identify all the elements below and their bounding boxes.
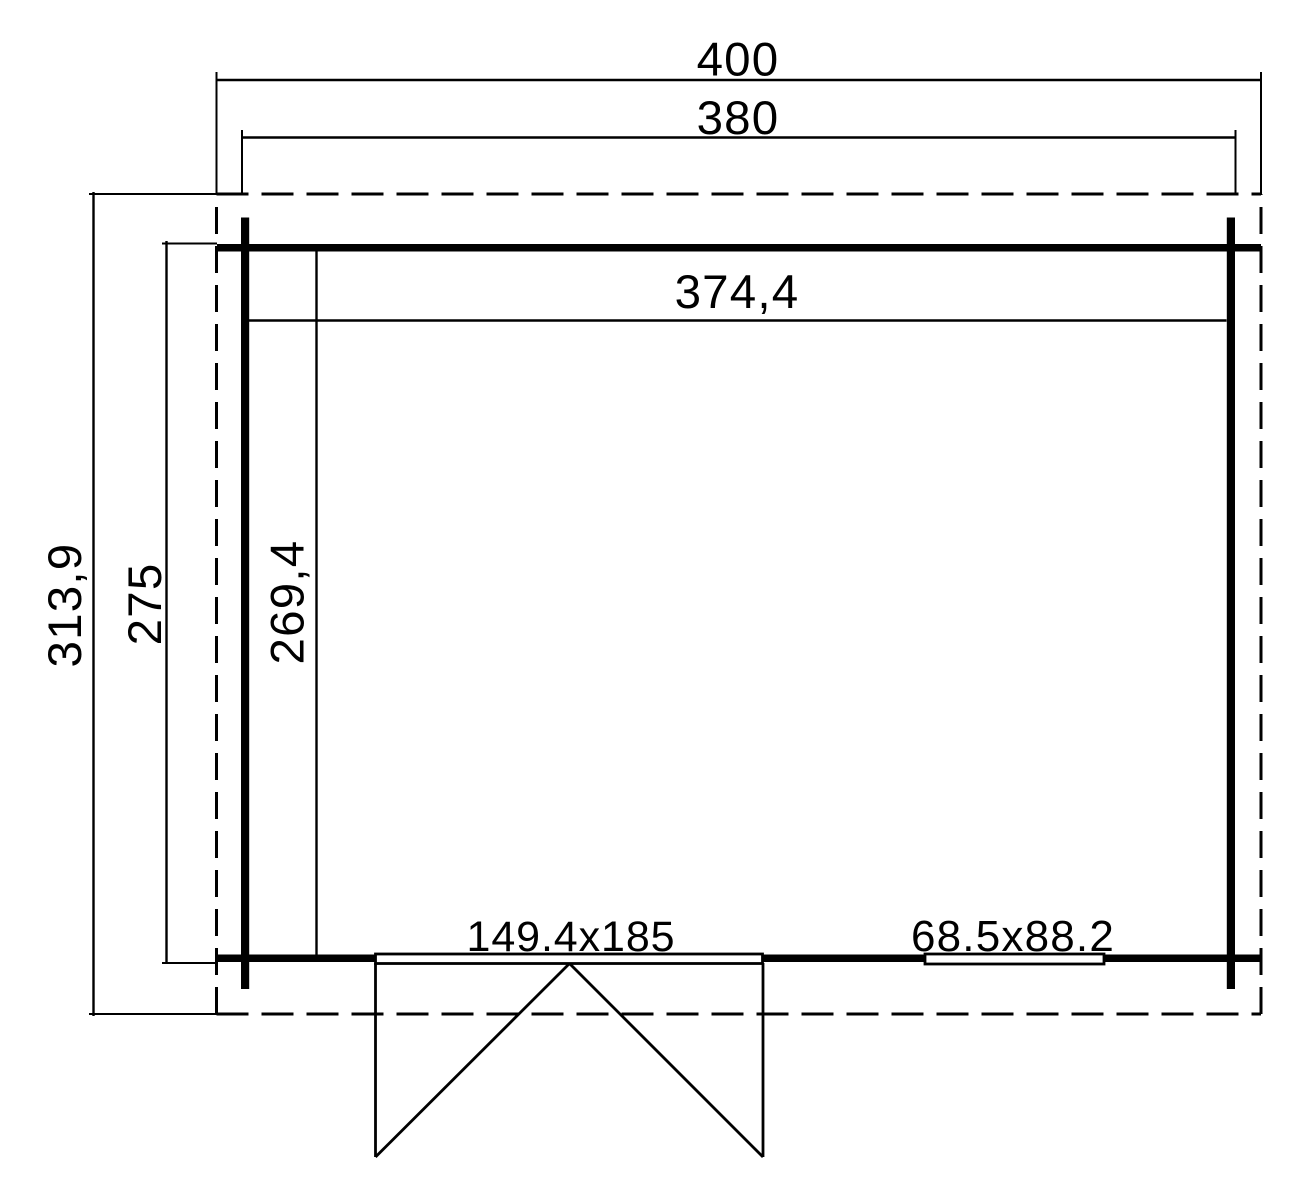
svg-text:149.4x185: 149.4x185 [467,913,676,961]
svg-text:269,4: 269,4 [262,540,315,665]
svg-text:400: 400 [697,34,780,87]
svg-text:380: 380 [697,92,780,145]
svg-text:275: 275 [119,563,172,646]
svg-text:313,9: 313,9 [39,543,92,668]
svg-text:68.5x88.2: 68.5x88.2 [911,912,1115,961]
svg-text:374,4: 374,4 [675,266,800,319]
